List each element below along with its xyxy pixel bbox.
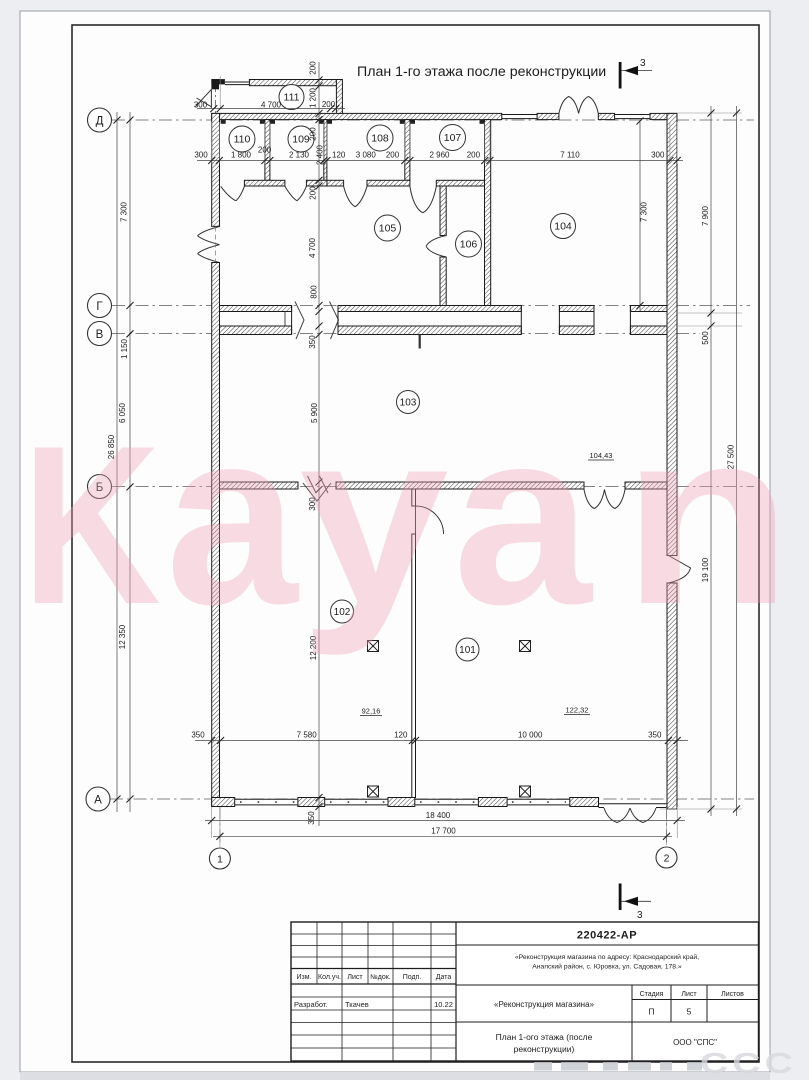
svg-text:Дата: Дата (436, 974, 452, 981)
svg-text:7 110: 7 110 (560, 150, 580, 159)
svg-text:Разработ.: Разработ. (294, 1000, 328, 1009)
svg-text:18 400: 18 400 (426, 811, 451, 820)
svg-text:Анапский район, с. Юровка, ул.: Анапский район, с. Юровка, ул. Садовая, … (532, 963, 682, 971)
svg-text:104: 104 (554, 221, 572, 233)
svg-text:Изм.: Изм. (297, 974, 312, 981)
svg-text:Подп.: Подп. (403, 974, 422, 981)
svg-text:реконструкции): реконструкции) (514, 1044, 575, 1054)
svg-text:122,32: 122,32 (566, 706, 589, 715)
svg-text:106: 106 (460, 239, 478, 251)
svg-text:107: 107 (444, 132, 462, 144)
svg-text:7 300: 7 300 (640, 201, 649, 222)
svg-text:300: 300 (194, 100, 208, 109)
svg-text:«Реконструкция магазина»: «Реконструкция магазина» (494, 1000, 595, 1009)
svg-text:А: А (94, 795, 102, 807)
svg-text:300: 300 (651, 150, 665, 159)
svg-text:В: В (96, 329, 104, 341)
svg-text:7 900: 7 900 (701, 205, 710, 226)
svg-text:111: 111 (284, 92, 300, 104)
svg-text:Лист: Лист (681, 991, 697, 998)
svg-text:Лист: Лист (347, 974, 363, 981)
svg-text:220422-АР: 220422-АР (577, 930, 637, 942)
svg-text:17 700: 17 700 (431, 826, 456, 835)
svg-text:Стадия: Стадия (640, 991, 664, 998)
svg-text:Г: Г (96, 301, 103, 313)
svg-text:П: П (648, 1007, 654, 1017)
svg-text:«Реконструкция магазина по адр: «Реконструкция магазина по адресу: Красн… (515, 953, 699, 961)
svg-text:800: 800 (310, 285, 319, 299)
svg-text:350: 350 (191, 730, 205, 739)
svg-text:Д: Д (96, 116, 104, 128)
svg-text:K: K (22, 399, 161, 651)
svg-text:2 130: 2 130 (289, 150, 310, 159)
svg-text:109: 109 (292, 134, 310, 146)
svg-text:300: 300 (194, 150, 208, 159)
svg-text:350: 350 (307, 811, 316, 825)
svg-text:№док.: №док. (370, 974, 391, 981)
svg-text:1 200: 1 200 (309, 87, 318, 108)
svg-text:10 000: 10 000 (518, 730, 543, 739)
svg-text:110: 110 (234, 134, 251, 146)
svg-text:5: 5 (687, 1007, 692, 1017)
svg-text:3: 3 (637, 910, 643, 921)
svg-text:Листов: Листов (721, 991, 744, 998)
svg-text:2 960: 2 960 (429, 150, 450, 159)
svg-text:7 580: 7 580 (297, 730, 318, 739)
svg-text:3 080: 3 080 (356, 150, 377, 159)
svg-text:500: 500 (701, 331, 710, 345)
svg-text:200: 200 (309, 61, 318, 75)
svg-text:7 300: 7 300 (120, 201, 129, 222)
svg-text:200: 200 (309, 186, 318, 200)
svg-text:Ткачев: Ткачев (345, 1000, 369, 1009)
svg-text:2: 2 (664, 853, 670, 865)
svg-text:10.22: 10.22 (434, 1000, 453, 1009)
svg-text:3: 3 (640, 58, 646, 69)
svg-text:Кол.уч.: Кол.уч. (318, 974, 341, 981)
svg-text:104,43: 104,43 (590, 451, 613, 460)
svg-text:200: 200 (309, 127, 318, 141)
svg-text:350: 350 (648, 730, 662, 739)
svg-text:ООО "СПС": ООО "СПС" (673, 1038, 717, 1047)
svg-text:200: 200 (386, 150, 400, 159)
svg-text:План 1-го этажа после реконстр: План 1-го этажа после реконструкции (357, 64, 606, 80)
svg-text:1 150: 1 150 (120, 338, 129, 359)
svg-text:350: 350 (308, 335, 317, 349)
svg-text:4 700: 4 700 (308, 237, 317, 258)
svg-text:ССС: ССС (700, 1048, 797, 1080)
svg-text:120: 120 (332, 150, 346, 159)
svg-text:1 800: 1 800 (231, 150, 252, 159)
svg-text:a: a (453, 378, 594, 656)
svg-text:200: 200 (322, 100, 336, 109)
svg-text:a: a (166, 378, 299, 656)
svg-text:4 700: 4 700 (261, 100, 282, 109)
svg-text:120: 120 (394, 730, 408, 739)
svg-text:108: 108 (371, 133, 389, 145)
svg-text:200: 200 (258, 145, 272, 154)
svg-text:2 400: 2 400 (316, 144, 325, 165)
svg-text:200: 200 (467, 150, 481, 159)
svg-text:y: y (299, 377, 450, 657)
svg-text:План 1-ого этажа (после: План 1-ого этажа (после (496, 1032, 593, 1042)
svg-text:92,16: 92,16 (362, 707, 381, 716)
svg-text:105: 105 (379, 223, 397, 235)
svg-text:1: 1 (217, 854, 223, 866)
svg-text:n: n (622, 379, 792, 657)
